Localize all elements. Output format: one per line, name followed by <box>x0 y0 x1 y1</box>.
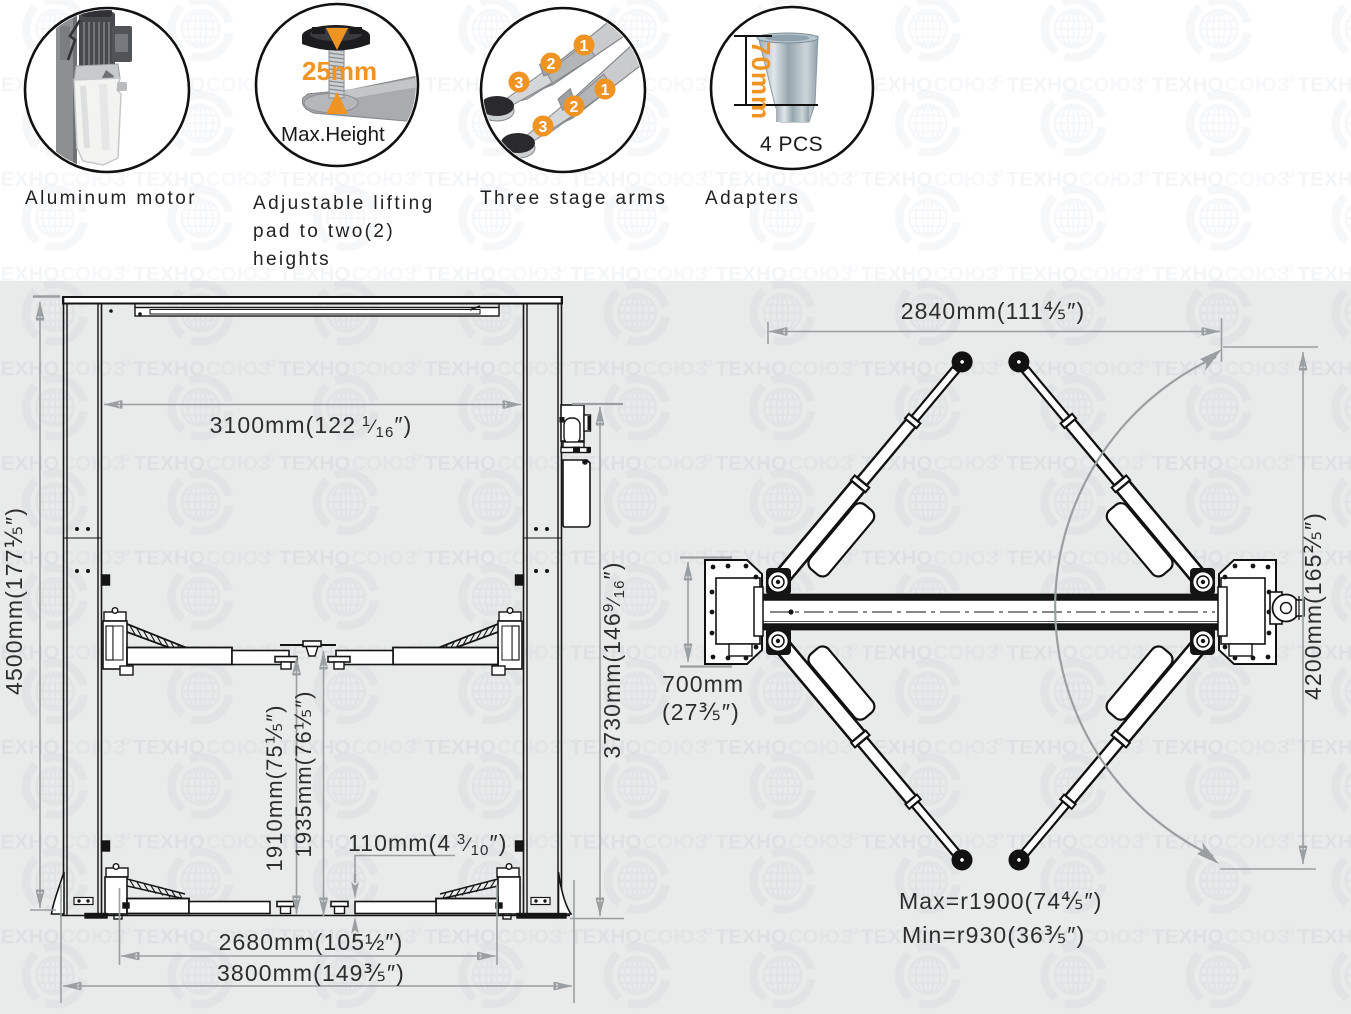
svg-text:Max.Height: Max.Height <box>281 123 385 146</box>
svg-text:25mm: 25mm <box>302 56 377 86</box>
svg-text:3800mm(149⅗″): 3800mm(149⅗″) <box>217 960 405 986</box>
svg-text:3: 3 <box>515 75 524 92</box>
svg-text:2840mm(111⅘″): 2840mm(111⅘″) <box>901 298 1086 324</box>
svg-text:Three stage arms: Three stage arms <box>480 188 667 209</box>
svg-text:1935mm(76⅕″): 1935mm(76⅕″) <box>291 690 316 857</box>
svg-text:4 PCS: 4 PCS <box>760 133 823 156</box>
svg-text:Adapters: Adapters <box>705 188 800 209</box>
svg-text:1910mm(75⅕″): 1910mm(75⅕″) <box>262 704 287 871</box>
svg-text:1: 1 <box>580 38 589 55</box>
svg-text:4500mm(177⅕″): 4500mm(177⅕″) <box>1 507 27 695</box>
svg-text:Max=r1900(74⅘″): Max=r1900(74⅘″) <box>899 888 1103 914</box>
svg-text:heights: heights <box>253 249 331 270</box>
svg-text:pad to two(2): pad to two(2) <box>253 221 395 242</box>
svg-text:70mm: 70mm <box>746 41 776 120</box>
svg-text:Min=r930(36⅗″): Min=r930(36⅗″) <box>902 922 1085 948</box>
svg-text:4200mm(165⅖″): 4200mm(165⅖″) <box>1300 512 1326 700</box>
svg-text:(27⅗″): (27⅗″) <box>662 699 740 725</box>
svg-text:Adjustable lifting: Adjustable lifting <box>253 193 435 214</box>
svg-text:2: 2 <box>570 99 579 116</box>
svg-text:1: 1 <box>601 82 610 99</box>
svg-text:700mm: 700mm <box>662 671 744 697</box>
svg-text:3: 3 <box>539 119 548 136</box>
svg-text:2: 2 <box>547 56 556 73</box>
svg-text:2680mm(105½″): 2680mm(105½″) <box>219 929 404 955</box>
svg-text:Aluminum motor: Aluminum motor <box>25 188 197 209</box>
